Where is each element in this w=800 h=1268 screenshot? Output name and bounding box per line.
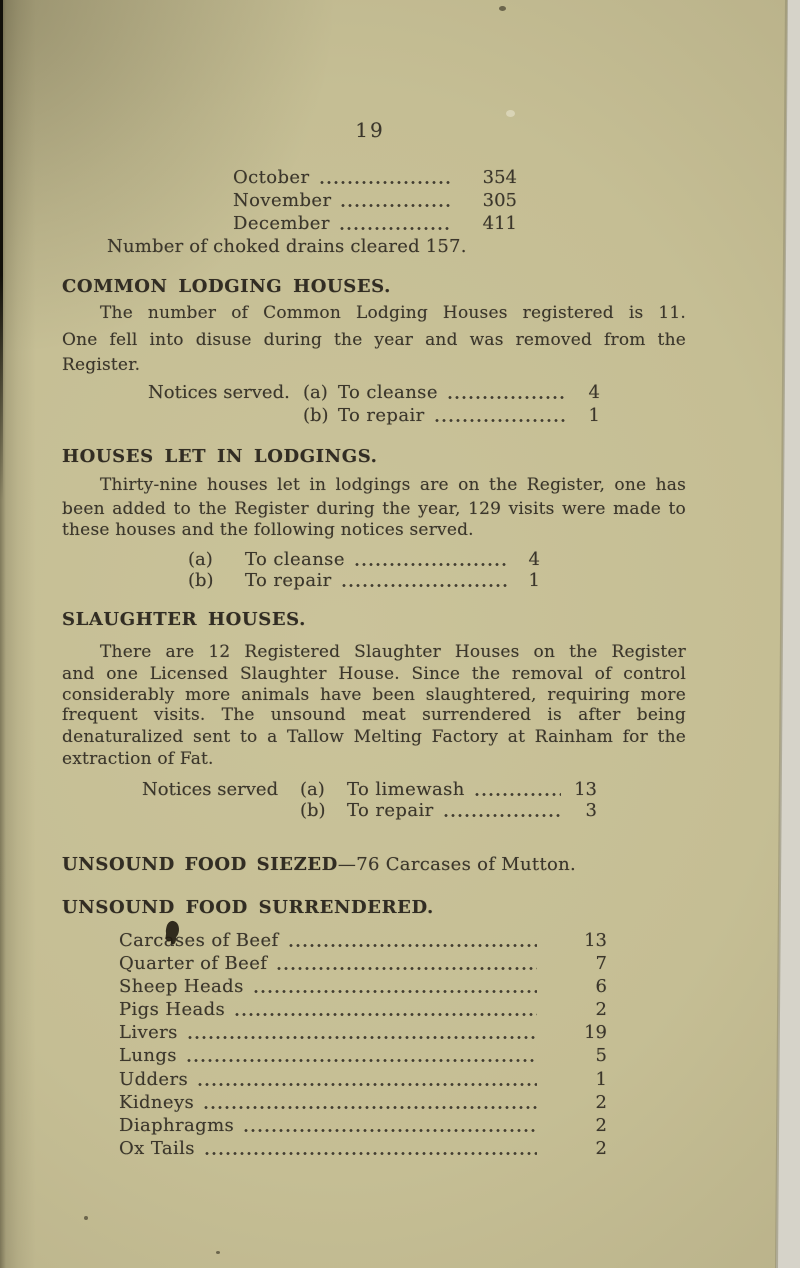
dot-leader [235,1012,537,1017]
item-label: Udders [119,1068,188,1092]
surrendered-row: Livers 19 [119,1021,607,1045]
paragraph-line: and one Licensed Slaughter House. Since … [62,663,686,685]
paragraph-line: There are 12 Registered Slaughter Houses… [100,641,686,663]
surrendered-row: Carcases of Beef 13 [119,929,607,953]
notices-served-label: Notices served. [148,381,303,405]
item-label: Carcases of Beef [119,929,279,953]
item-value: 2 [577,1114,607,1138]
surrendered-row: Udders 1 [119,1068,607,1092]
item-label: Kidneys [119,1091,194,1115]
dot-leader [289,943,537,948]
month-value: 305 [481,189,517,213]
notice-row: Notices served. (a) To cleanse 4 [148,381,600,405]
section-heading-unsound-surrendered: UNSOUND FOOD SURRENDERED. [62,897,434,918]
item-value: 2 [577,1091,607,1115]
dot-leader [355,562,508,567]
paragraph-line: One fell into disuse during the year and… [62,329,686,351]
dot-leader [188,1035,537,1040]
item-value: 19 [577,1021,607,1045]
dot-leader [205,1151,537,1156]
dot-leader [341,203,451,208]
item-value: 6 [577,975,607,999]
notices-served-label: Notices served [142,778,300,802]
notice-tag: (b) [300,799,347,823]
item-value: 13 [577,929,607,953]
surrendered-row: Ox Tails 2 [119,1137,607,1161]
choked-drains-line: Number of choked drains cleared 157. [107,236,667,258]
dot-leader [244,1128,537,1133]
item-label: Ox Tails [119,1137,195,1161]
section-heading-unsound-seized: UNSOUND FOOD SIEZED—76 Carcases of Mutto… [62,854,576,875]
dot-leader [435,418,566,423]
paragraph-line: Register. [62,354,686,376]
paper-speck [506,110,515,117]
paragraph-line: these houses and the following notices s… [62,519,686,541]
notice-value: 4 [576,381,600,405]
scanned-report-page: 19 October 354 November 305 December 411… [0,0,800,1268]
notice-value: 1 [518,569,540,593]
surrendered-row: Quarter of Beef 7 [119,952,607,976]
notice-row: (b) To repair 1 [303,404,600,428]
item-value: 2 [577,1137,607,1161]
notice-label: To repair [338,404,425,428]
month-row: December 411 [233,212,517,236]
paragraph-line: frequent visits. The unsound meat surren… [62,704,686,726]
dot-leader [340,226,451,231]
dot-leader [254,989,537,994]
book-spine-shadow [0,0,3,500]
notice-tag: (a) [303,381,338,405]
item-value: 2 [577,998,607,1022]
notice-label: To cleanse [338,381,438,405]
paper-speck [216,1251,220,1254]
surrendered-row: Kidneys 2 [119,1091,607,1115]
item-value: 5 [577,1044,607,1068]
paragraph-line: extraction of Fat. [62,748,686,770]
notice-row: (b) To repair 3 [300,799,597,823]
paragraph-line: Thirty-nine houses let in lodgings are o… [100,474,686,496]
item-value: 7 [577,952,607,976]
section-heading-houses-let: HOUSES LET IN LODGINGS. [62,446,378,467]
section-heading-slaughter: SLAUGHTER HOUSES. [62,609,306,630]
notice-tag: (b) [303,404,338,428]
paragraph-line: denaturalized sent to a Tallow Melting F… [62,726,686,748]
item-label: Lungs [119,1044,177,1068]
notice-label: To repair [347,799,434,823]
month-label: October [233,166,310,190]
paragraph-line: been added to the Register during the ye… [62,498,686,520]
notice-value: 1 [576,404,600,428]
notice-label: To repair [245,569,332,593]
notice-tag: (b) [188,569,245,593]
notice-value: 3 [571,799,597,823]
dot-leader [277,966,537,971]
paper-speck [499,6,506,11]
section-heading-common-lodging: COMMON LODGING HOUSES. [62,276,391,297]
item-label: Quarter of Beef [119,952,267,976]
seized-heading-rest: —76 Carcases of Mutton. [338,854,576,875]
month-label: November [233,189,331,213]
surrendered-row: Pigs Heads 2 [119,998,607,1022]
month-label: December [233,212,330,236]
dot-leader [320,180,452,185]
surrendered-row: Diaphragms 2 [119,1114,607,1138]
surrendered-row: Sheep Heads 6 [119,975,607,999]
notice-row: (b) To repair 1 [188,569,540,593]
month-row: November 305 [233,189,517,213]
month-value: 354 [481,166,517,190]
item-label: Sheep Heads [119,975,244,999]
surrendered-row: Lungs 5 [119,1044,607,1068]
dot-leader [198,1082,537,1087]
dot-leader [444,813,561,818]
paper-speck [84,1216,88,1220]
paragraph-line: The number of Common Lodging Houses regi… [100,302,686,324]
page-number: 19 [348,118,392,142]
month-row: October 354 [233,166,517,190]
dot-leader [475,792,561,797]
item-label: Diaphragms [119,1114,234,1138]
item-label: Livers [119,1021,178,1045]
dot-leader [204,1105,537,1110]
dot-leader [342,583,508,588]
month-value: 411 [481,212,517,236]
dot-leader [448,395,566,400]
seized-heading-bold: UNSOUND FOOD SIEZED [62,854,338,875]
item-label: Pigs Heads [119,998,225,1022]
dot-leader [187,1058,537,1063]
paragraph-line: considerably more animals have been slau… [62,684,686,706]
item-value: 1 [577,1068,607,1092]
